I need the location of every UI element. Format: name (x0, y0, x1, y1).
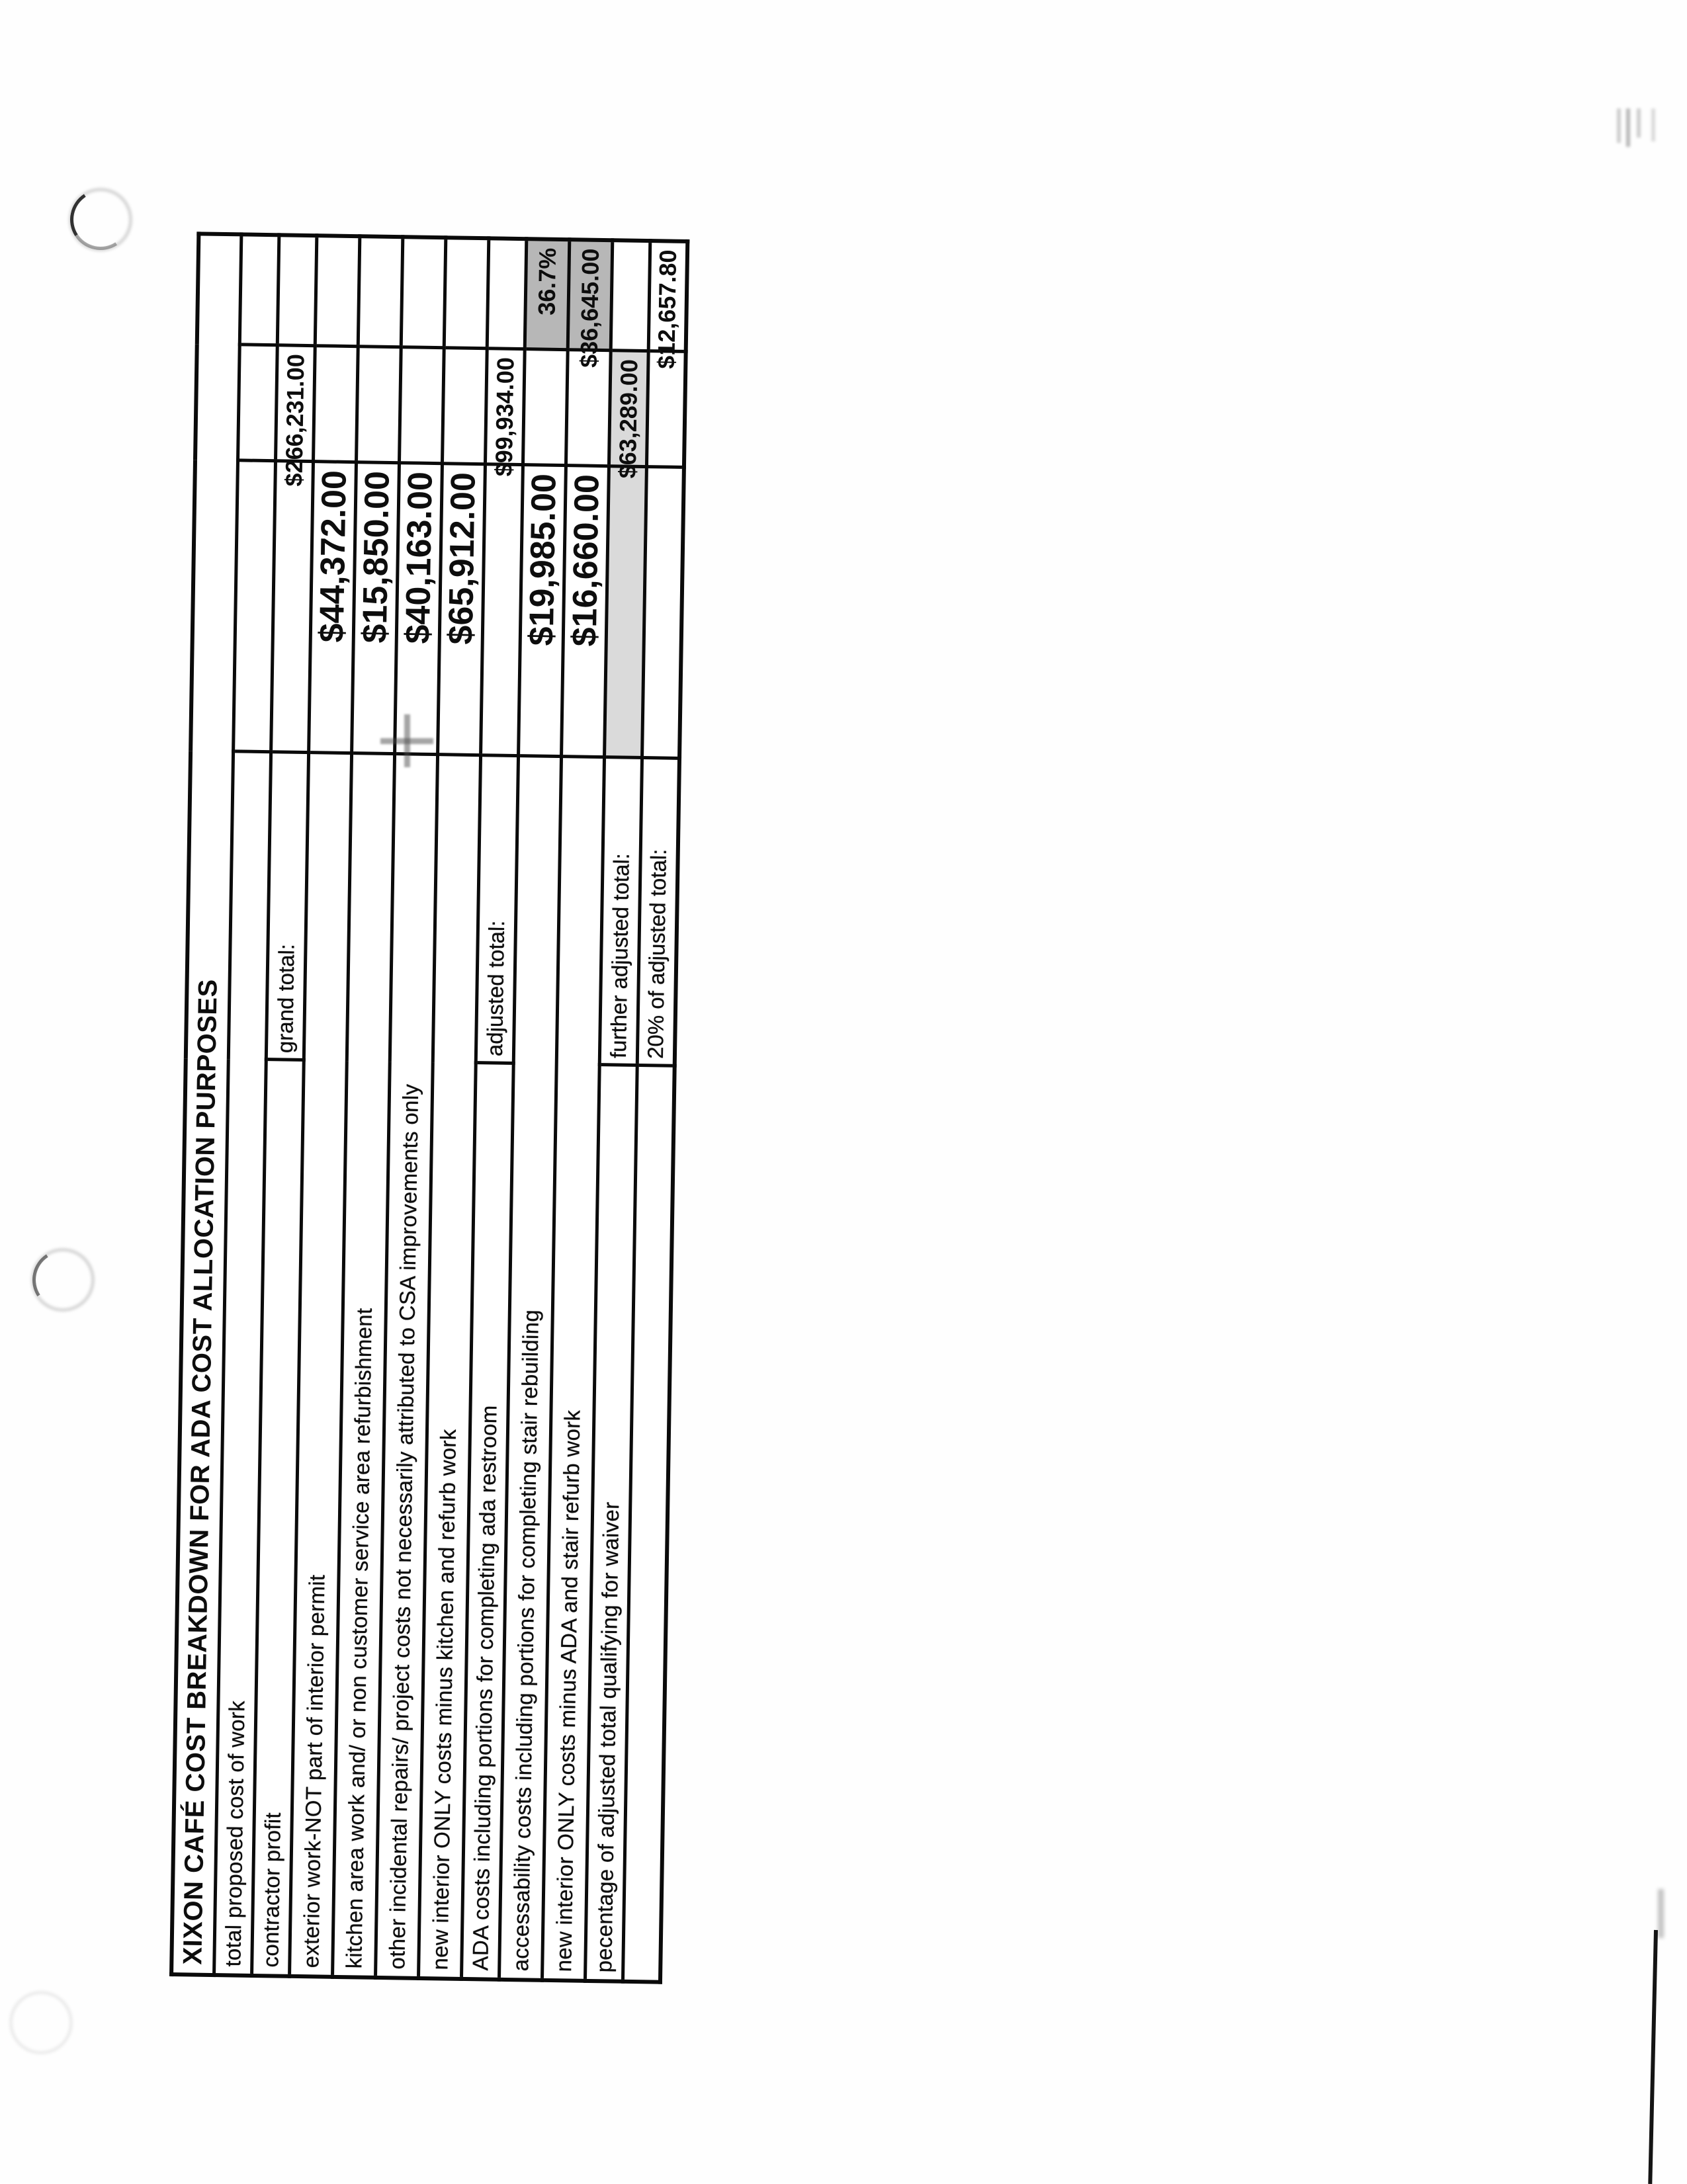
scan-streak-line (1648, 1930, 1658, 2184)
subtotal-label: further adjusted total: (599, 757, 642, 1066)
cost-value: $44,372.00 (310, 464, 355, 752)
subtotal-cell (313, 346, 358, 462)
final-cell: $12,657.80 (648, 241, 688, 352)
final-cell (358, 236, 403, 347)
final-cell (611, 240, 650, 351)
value-cell (604, 466, 646, 758)
value-cell (233, 460, 275, 752)
rotated-table-wrapper: XIXON CAFÉ COST BREAKDOWN FOR ADA COST A… (169, 231, 689, 1984)
final-cell (444, 237, 489, 349)
value-cell: $40,163.00 (394, 463, 442, 755)
subtotal-cell (399, 347, 444, 464)
punch-hole-arc (26, 1243, 99, 1316)
percent-cell-shaded: 36.7% (525, 239, 570, 350)
subtotal-label: adjusted total: (476, 755, 518, 1064)
value-cell (642, 467, 684, 759)
subtotal-cell-shaded: $63,289.00 (609, 351, 648, 467)
final-value: $12,657.80 (653, 243, 683, 350)
punch-hole (70, 189, 131, 250)
final-cell (401, 237, 446, 348)
pencil-cross-mark (380, 714, 433, 767)
final-cell (315, 235, 360, 347)
value-cell: $65,912.00 (437, 464, 485, 755)
cost-value: $16,660.00 (563, 468, 607, 756)
scanned-page: XIXON CAFÉ COST BREAKDOWN FOR ADA COST A… (0, 0, 1687, 2183)
punch-hole (32, 1249, 93, 1310)
value-cell (480, 464, 523, 756)
subtotal-cell: $266,231.00 (275, 345, 315, 462)
final-cell-shaded: $36,645.00 (568, 239, 613, 351)
value-cell: $16,660.00 (561, 466, 609, 757)
subtotal-cell (523, 349, 568, 466)
final-cell (239, 234, 279, 345)
value-cell (271, 461, 313, 753)
final-cell (487, 238, 527, 349)
punch-hole-halo (9, 1991, 73, 2054)
subtotal-value: $99,934.00 (490, 351, 520, 464)
value-cell: $19,985.00 (518, 465, 566, 757)
final-cell (277, 235, 317, 346)
cost-value: $19,985.00 (520, 467, 564, 755)
cost-breakdown-table: XIXON CAFÉ COST BREAKDOWN FOR ADA COST A… (169, 231, 689, 1984)
scan-smudge (1612, 105, 1684, 151)
subtotal-label: 20% of adjusted total: (637, 758, 679, 1066)
punch-hole-arc (64, 183, 136, 255)
cost-value: $15,850.00 (353, 464, 398, 753)
subtotal-value: $266,231.00 (281, 347, 310, 460)
final-value: $36,645.00 (575, 241, 605, 349)
scan-streak-fade (1658, 1889, 1664, 1938)
subtotal-cell (238, 345, 277, 461)
subtotal-cell: $99,934.00 (485, 349, 525, 465)
subtotal-cell (442, 348, 487, 464)
cost-value: $40,163.00 (396, 465, 441, 753)
subtotal-label: grand total: (266, 752, 308, 1060)
value-cell: $15,850.00 (351, 462, 399, 754)
subtotal-cell (356, 347, 401, 463)
percent-value: 36.7% (532, 241, 562, 348)
subtotal-value: $63,289.00 (613, 353, 643, 466)
cost-value: $65,912.00 (439, 466, 484, 754)
value-cell: $44,372.00 (308, 462, 356, 753)
punch-hole (11, 1992, 71, 2053)
